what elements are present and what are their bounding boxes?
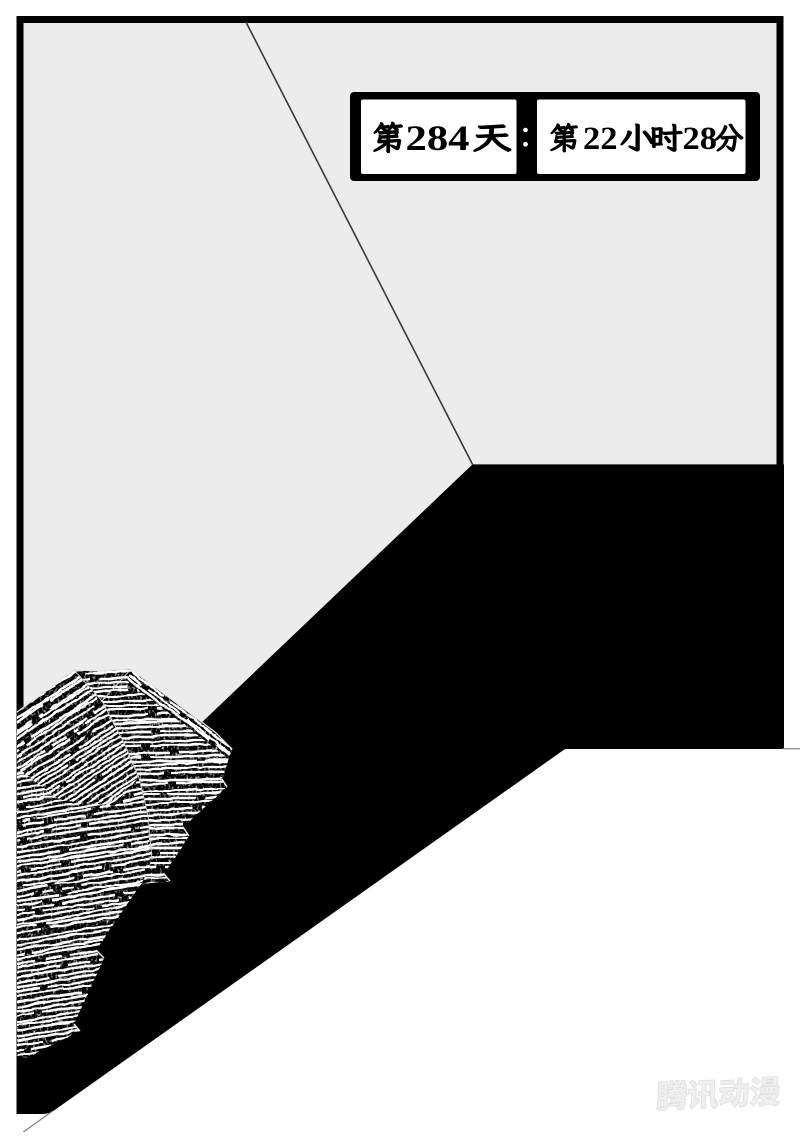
svg-text:22: 22 (583, 121, 618, 157)
svg-text:28: 28 (683, 121, 718, 157)
svg-text:284: 284 (406, 118, 470, 158)
